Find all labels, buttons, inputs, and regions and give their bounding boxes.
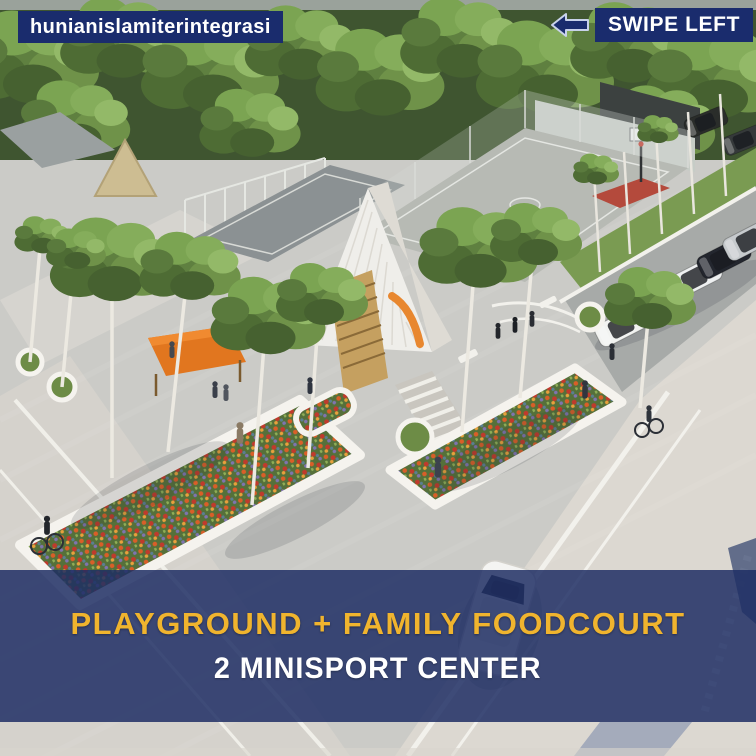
poster: hunianislamiterintegrasi SWIPE LEFT PLAY…	[0, 0, 756, 756]
swipe-left-cta[interactable]: SWIPE LEFT	[550, 8, 753, 42]
caption-banner: PLAYGROUND + FAMILY FOODCOURT 2 MINISPOR…	[0, 570, 756, 722]
arrow-left-icon	[550, 11, 590, 39]
swipe-left-badge[interactable]: SWIPE LEFT	[595, 8, 753, 42]
swipe-left-label: SWIPE LEFT	[608, 13, 740, 37]
caption-subheadline: 2 MINISPORT CENTER	[214, 652, 542, 686]
brand-badge: hunianislamiterintegrasi	[18, 11, 283, 43]
caption-headline: PLAYGROUND + FAMILY FOODCOURT	[70, 606, 685, 642]
brand-badge-label: hunianislamiterintegrasi	[30, 16, 271, 39]
